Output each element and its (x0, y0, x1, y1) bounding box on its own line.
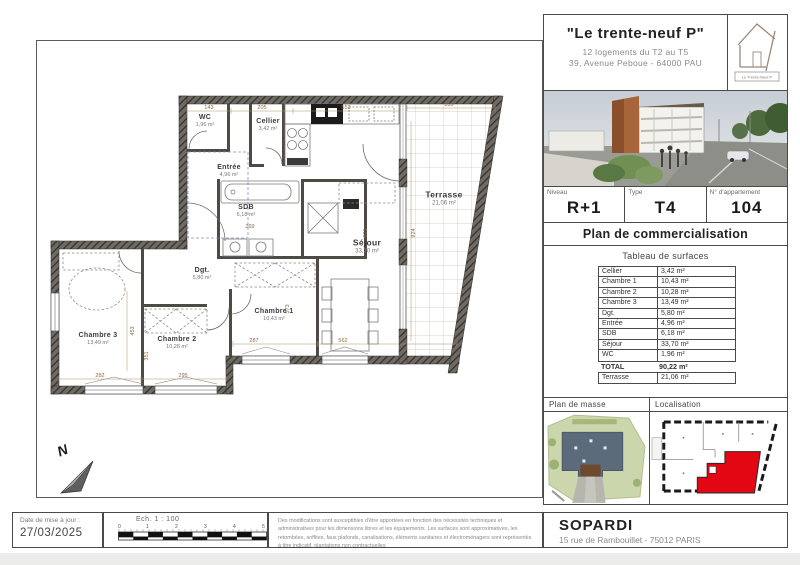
surfaces-table-title: Tableau de surfaces (544, 251, 787, 261)
project-title: "Le trente-neuf P" (544, 25, 727, 42)
floor-plan-drawing: 143 205 552 359 282 295 287 562 269 453 … (37, 41, 542, 497)
disclaimer-box: Des modifications sont susceptibles d'êt… (268, 512, 543, 548)
table-row: Chambre 210,28 m² (599, 288, 735, 298)
svg-text:573: 573 (285, 304, 291, 313)
table-row: Chambre 110,43 m² (599, 277, 735, 287)
svg-text:351: 351 (144, 351, 150, 360)
svg-text:282: 282 (95, 373, 104, 379)
north-arrow: N (55, 441, 93, 493)
table-row: SDB6,18 m² (599, 329, 735, 339)
apartment-number-label: N° d'appartement (710, 189, 760, 196)
table-row: WC1,96 m² (599, 350, 735, 360)
localisation-label: Localisation (650, 398, 787, 412)
date-value: 27/03/2025 (20, 527, 102, 539)
mini-maps-section: Plan de masse (544, 398, 787, 504)
project-title-box: "Le trente-neuf P" 12 logements du T2 au… (544, 15, 787, 91)
type-label: Type (628, 189, 642, 196)
svg-text:287: 287 (249, 338, 258, 344)
terrace-glazed-wall (399, 104, 407, 364)
svg-text:562: 562 (338, 338, 347, 344)
surfaces-section: Tableau de surfaces Cellier3,42 m² Chamb… (544, 246, 787, 398)
table-row: Chambre 313,49 m² (599, 298, 735, 308)
svg-text:3: 3 (204, 524, 207, 530)
niveau-value: R+1 (544, 198, 624, 218)
table-row: Cellier3,42 m² (599, 267, 735, 277)
localisation-panel: Localisation (650, 398, 787, 504)
floor-plan-frame: 143 205 552 359 282 295 287 562 269 453 … (36, 40, 543, 498)
project-subtitle-2: 39, Avenue Peboue - 64000 PAU (544, 58, 727, 68)
svg-text:N: N (55, 441, 71, 460)
table-row: Entrée4,96 m² (599, 319, 735, 329)
unit-apartment-cell: N° d'appartement 104 (707, 187, 787, 222)
plan-de-masse-map (544, 412, 649, 504)
unit-info-row: Niveau R+1 Type T4 N° d'appartement 104 (544, 186, 787, 223)
door-arcs (119, 131, 400, 330)
house-logo-icon: Le Trente-Neuf P (728, 15, 786, 89)
scale-bar: 0 1 2 3 4 5 (118, 523, 268, 543)
project-subtitle-1: 12 logements du T2 au T5 (544, 47, 727, 57)
scale-label: Ech. 1 : 100 (136, 516, 267, 523)
floor-locator-illustration (650, 412, 786, 503)
table-row: Dgt.5,80 m² (599, 309, 735, 319)
disclaimer-text: Des modifications sont susceptibles d'êt… (269, 513, 542, 555)
plan-de-masse-panel: Plan de masse (544, 398, 650, 504)
svg-text:359: 359 (444, 102, 453, 108)
site-plan-illustration (544, 412, 649, 503)
building-render-photo (544, 91, 787, 186)
title-block: "Le trente-neuf P" 12 logements du T2 au… (543, 14, 788, 505)
svg-text:Le Trente-Neuf P: Le Trente-Neuf P (742, 75, 773, 80)
unit-niveau-cell: Niveau R+1 (544, 187, 625, 222)
svg-text:453: 453 (130, 326, 136, 335)
svg-text:924: 924 (411, 228, 417, 237)
terrace-tiles (407, 104, 498, 359)
svg-text:2: 2 (175, 524, 178, 530)
svg-text:143: 143 (204, 105, 213, 111)
unit-type-cell: Type T4 (625, 187, 706, 222)
developer-box: SOPARDI 15 rue de Rambouillet - 75012 PA… (543, 512, 788, 548)
table-total-row: TOTAL 90,22 m² (598, 361, 736, 372)
svg-text:205: 205 (257, 105, 266, 111)
table-terrasse-row: Terrasse21,06 m² (598, 372, 736, 384)
date-label: Date de mise à jour : (20, 517, 102, 524)
surfaces-table: Cellier3,42 m² Chambre 110,43 m² Chambre… (598, 266, 736, 362)
project-logo: Le Trente-Neuf P (727, 15, 787, 91)
svg-text:4: 4 (233, 524, 236, 530)
svg-text:0: 0 (118, 524, 121, 530)
svg-text:269: 269 (245, 224, 254, 230)
table-row: Séjour33,70 m² (599, 340, 735, 350)
localisation-map (650, 412, 787, 504)
page-edge-shade (0, 553, 800, 565)
plan-de-masse-label: Plan de masse (544, 398, 649, 412)
svg-text:921: 921 (363, 228, 369, 237)
svg-text:295: 295 (178, 373, 187, 379)
developer-address: 15 rue de Rambouillet - 75012 PARIS (559, 535, 787, 545)
scale-box: Ech. 1 : 100 0 1 2 3 4 5 (103, 512, 268, 548)
svg-text:1: 1 (146, 524, 149, 530)
building-render-illustration (544, 91, 787, 186)
niveau-label: Niveau (547, 189, 567, 196)
date-box: Date de mise à jour : 27/03/2025 (12, 512, 103, 548)
svg-text:5: 5 (262, 524, 265, 530)
apartment-number-value: 104 (707, 198, 787, 218)
type-value: T4 (625, 198, 705, 218)
developer-name: SOPARDI (559, 517, 787, 534)
svg-text:552: 552 (341, 105, 350, 111)
section-title: Plan de commercialisation (544, 223, 787, 246)
